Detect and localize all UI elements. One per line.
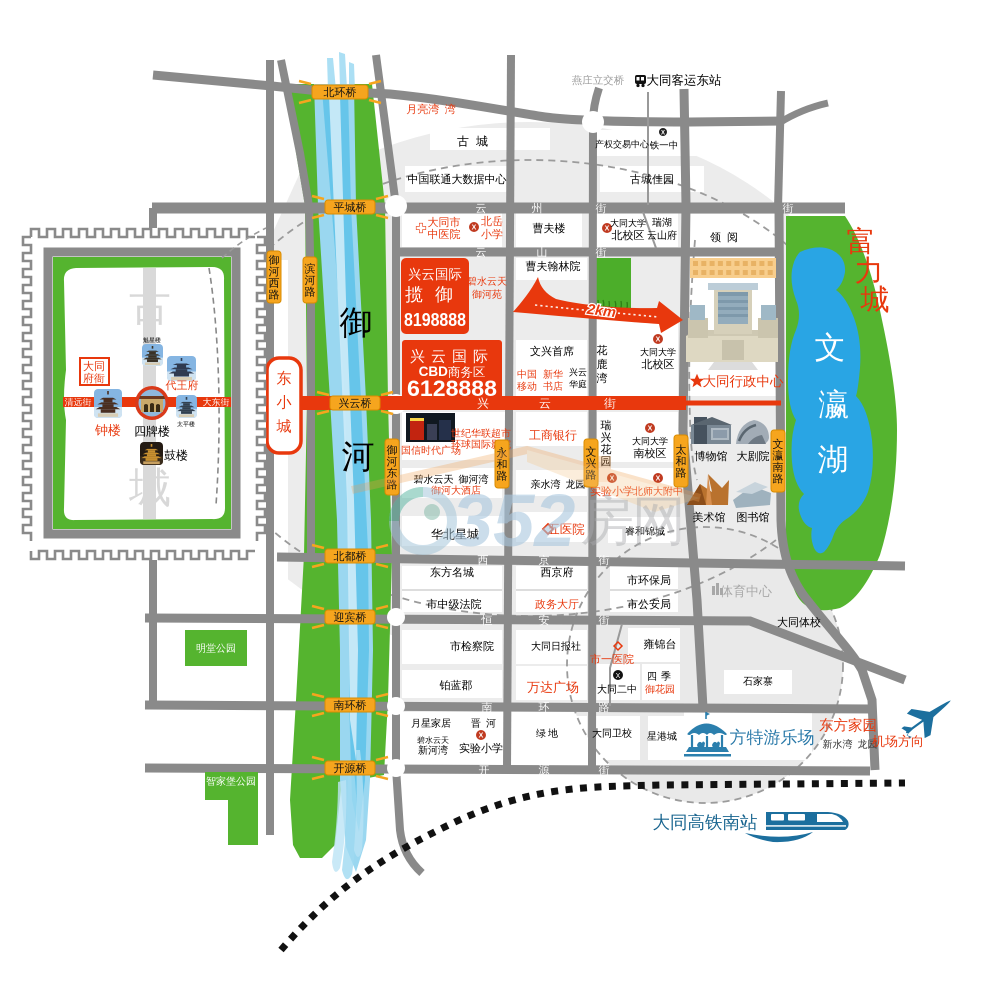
svg-text:6128888: 6128888 [407,376,497,401]
svg-text:X: X [479,733,484,740]
svg-text:X: X [648,426,653,433]
svg-text:8198888: 8198888 [404,310,466,330]
svg-text:X: X [656,476,661,483]
svg-text:X: X [616,673,621,680]
svg-text:X: X [605,226,610,233]
svg-text:352: 352 [452,479,575,562]
svg-text:X: X [472,225,477,232]
svg-text:X: X [656,337,661,344]
svg-text:X: X [661,131,665,137]
